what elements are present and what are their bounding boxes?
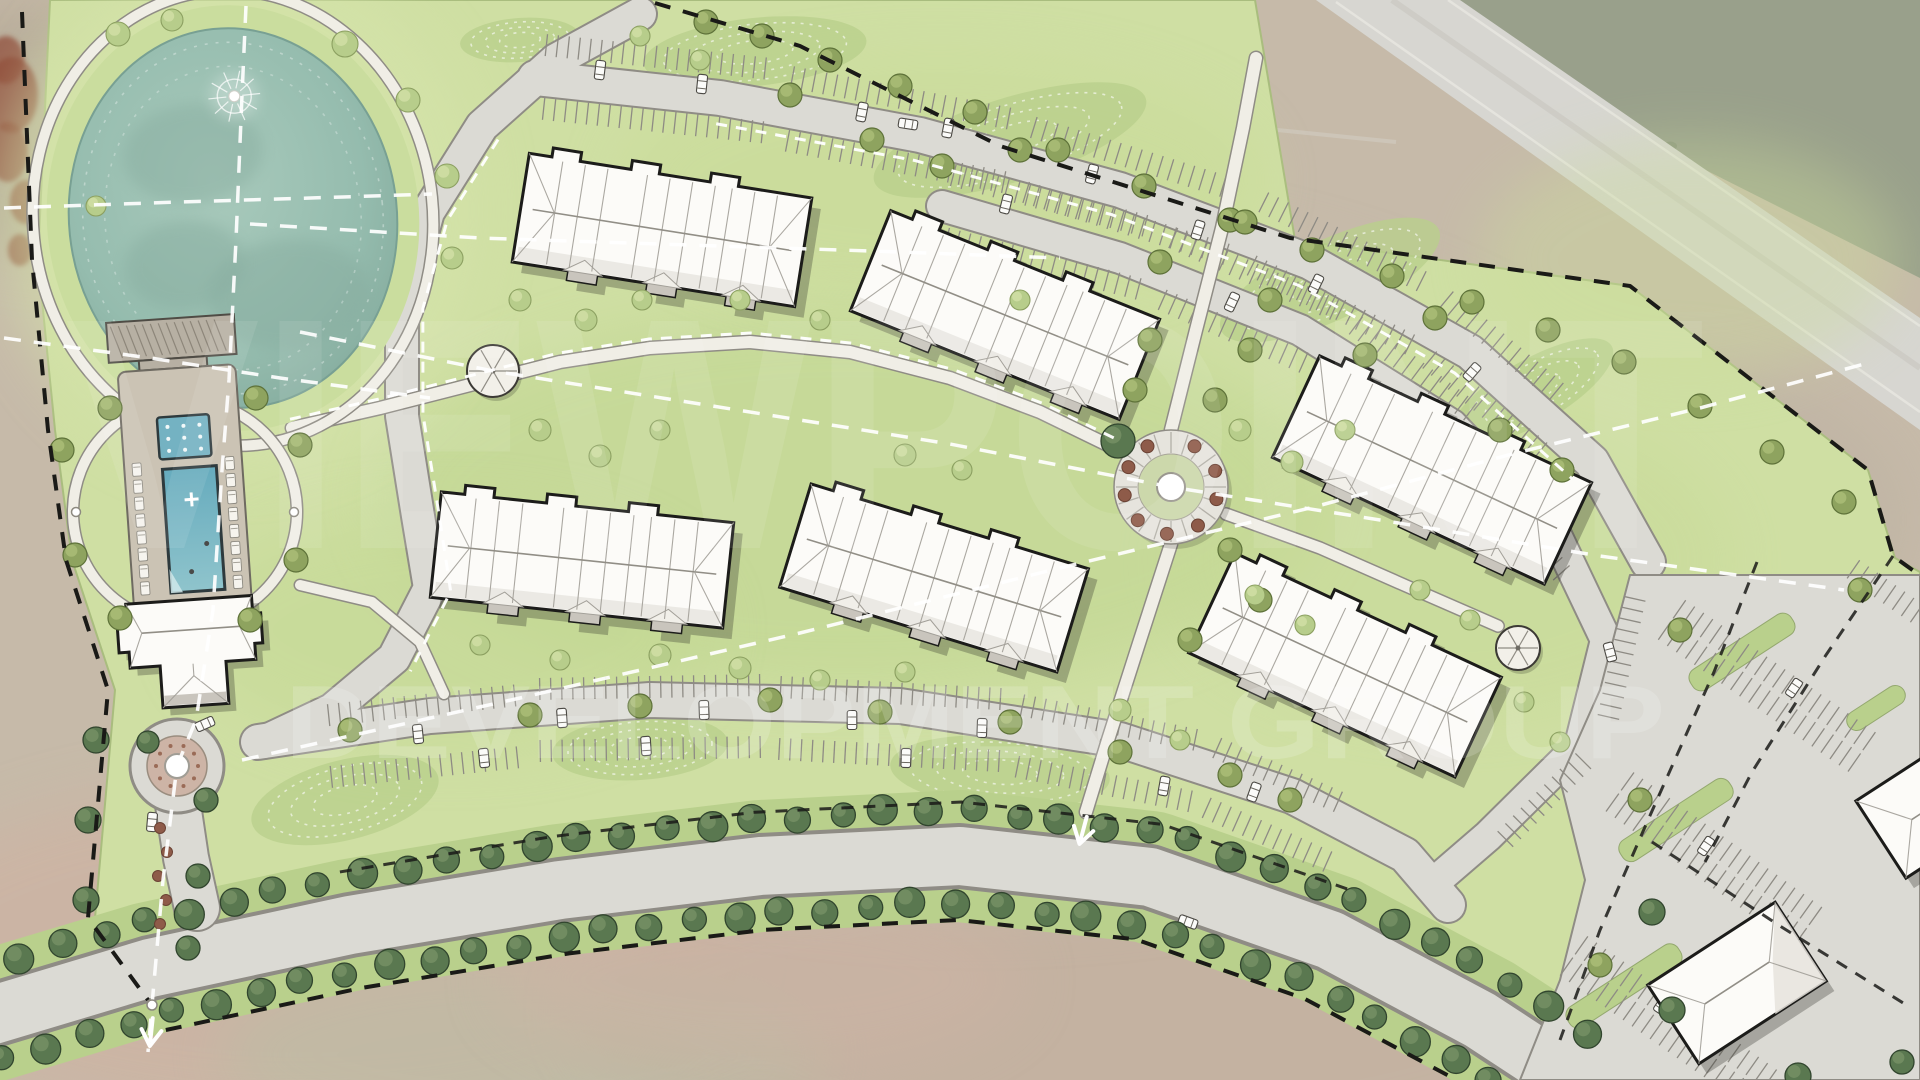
tree-icon <box>1400 1027 1430 1057</box>
tree-icon <box>76 1019 104 1047</box>
watermark-line-1: VIEWPOINT <box>65 249 1705 618</box>
tree-icon <box>137 731 159 753</box>
tree-icon <box>4 944 34 974</box>
tree-icon <box>259 877 285 903</box>
car-icon <box>594 60 606 80</box>
tree-icon <box>1890 1050 1914 1074</box>
watermark-line-2: DEVELOPMENT GROUP <box>285 665 1665 781</box>
tree-icon <box>159 998 183 1022</box>
tree-icon <box>480 845 504 869</box>
tree-icon <box>433 847 459 873</box>
tree-icon <box>1628 788 1652 812</box>
tree-icon <box>247 979 275 1007</box>
tree-icon <box>1456 947 1482 973</box>
tree-icon <box>348 858 378 888</box>
tree-icon <box>630 26 650 46</box>
tree-icon <box>106 22 130 46</box>
tree-icon <box>589 915 617 943</box>
tree-icon <box>682 907 706 931</box>
tree-icon <box>1498 973 1522 997</box>
tree-icon <box>690 50 710 70</box>
tree-icon <box>305 873 329 897</box>
tree-icon <box>859 896 883 920</box>
tree-icon <box>737 804 765 832</box>
tree-icon <box>1442 1045 1470 1073</box>
tree-icon <box>1046 138 1070 162</box>
tree-icon <box>1178 628 1202 652</box>
tree-icon <box>963 100 987 124</box>
tree-icon <box>636 915 662 941</box>
tree-icon <box>1363 1005 1387 1029</box>
tree-icon <box>421 947 449 975</box>
tree-icon <box>176 936 200 960</box>
tree-icon <box>1278 788 1302 812</box>
tree-icon <box>1071 901 1101 931</box>
tree-icon <box>461 938 487 964</box>
tree-icon <box>1295 615 1315 635</box>
tree-icon <box>961 795 987 821</box>
tree-icon <box>988 893 1014 919</box>
car-icon <box>696 74 708 94</box>
tree-icon <box>1216 842 1246 872</box>
tree-icon <box>1137 817 1163 843</box>
tree-icon <box>174 899 204 929</box>
tree-icon <box>1574 1020 1602 1048</box>
tree-icon <box>220 888 248 916</box>
tree-icon <box>1328 986 1354 1012</box>
site-plan-rendering: VIEWPOINT DEVELOPMENT GROUP <box>0 0 1920 1080</box>
tree-icon <box>1241 950 1271 980</box>
tree-icon <box>1668 618 1692 642</box>
tree-icon <box>1380 909 1410 939</box>
tree-icon <box>942 890 970 918</box>
tree-icon <box>1848 578 1872 602</box>
tree-icon <box>522 831 552 861</box>
tree-icon <box>765 897 793 925</box>
tree-icon <box>1534 991 1564 1021</box>
tree-icon <box>1285 962 1313 990</box>
tree-icon <box>1659 997 1685 1023</box>
tree-icon <box>860 128 884 152</box>
tree-icon <box>867 795 897 825</box>
tree-icon <box>562 823 590 851</box>
tree-icon <box>1163 922 1189 948</box>
tree-icon <box>655 816 679 840</box>
tree-icon <box>470 635 490 655</box>
tree-icon <box>375 949 405 979</box>
tree-icon <box>49 929 77 957</box>
tree-icon <box>1422 928 1450 956</box>
tree-icon <box>1044 804 1074 834</box>
tree-icon <box>507 935 531 959</box>
tree-icon <box>31 1034 61 1064</box>
tree-icon <box>812 900 838 926</box>
tree-icon <box>435 164 459 188</box>
tree-icon <box>194 788 218 812</box>
tree-icon <box>725 903 755 933</box>
tree-icon <box>778 83 802 107</box>
tree-icon <box>1035 902 1059 926</box>
tree-icon <box>132 908 156 932</box>
tree-icon <box>1118 911 1146 939</box>
tree-icon <box>1260 855 1288 883</box>
tree-icon <box>73 887 99 913</box>
tree-icon <box>1639 899 1665 925</box>
tree-icon <box>332 963 356 987</box>
tree-icon <box>332 31 358 57</box>
tree-icon <box>549 922 579 952</box>
tree-icon <box>286 967 312 993</box>
tree-icon <box>1832 490 1856 514</box>
tree-icon <box>1200 934 1224 958</box>
tree-icon <box>895 887 925 917</box>
tree-icon <box>161 9 183 31</box>
watermark: VIEWPOINT DEVELOPMENT GROUP <box>65 249 1705 781</box>
tree-icon <box>186 864 210 888</box>
tree-icon <box>396 88 420 112</box>
tree-icon <box>1760 440 1784 464</box>
tree-icon <box>1342 888 1366 912</box>
